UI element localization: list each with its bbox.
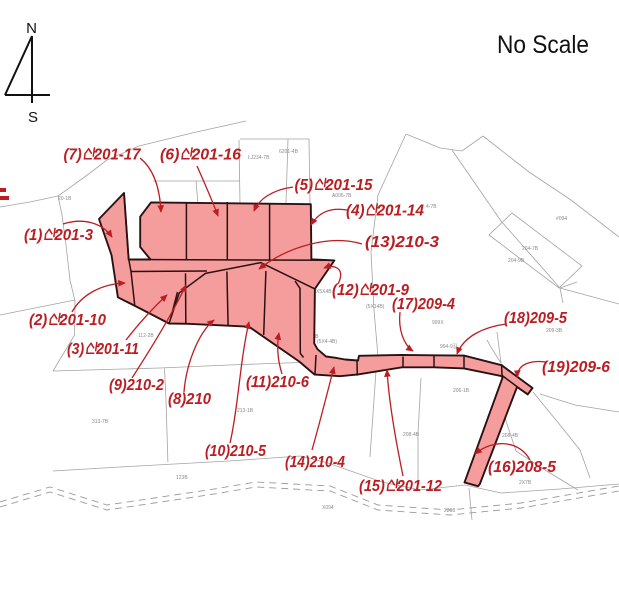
svg-text:#094: #094 [556,216,567,222]
svg-text:(11)210-6: (11)210-6 [246,374,309,391]
svg-text:201-12: 201-12 [396,478,442,495]
svg-text:201-11: 201-11 [95,341,139,358]
svg-text:(15): (15) [359,478,385,495]
svg-text:(7): (7) [64,147,82,164]
svg-text:(9)210-2: (9)210-2 [109,377,164,394]
svg-text:201-10: 201-10 [58,312,106,329]
svg-text:(8)210: (8)210 [168,391,211,408]
svg-text:2X7B: 2X7B [519,480,532,486]
svg-text:208-4B: 208-4B [403,432,420,438]
svg-text:(10)210-5: (10)210-5 [205,443,267,460]
svg-text:(4): (4) [346,203,365,220]
svg-text:N: N [26,20,37,37]
svg-text:(16)208-5: (16)208-5 [488,459,557,476]
svg-text:213-1B: 213-1B [237,408,254,414]
svg-text:209-3B: 209-3B [546,328,563,334]
svg-text:994-9길: 994-9길 [440,343,458,350]
svg-text:X094: X094 [322,505,334,511]
svg-text:(19)209-6: (19)209-6 [542,359,610,376]
svg-text:201-16: 201-16 [190,147,241,164]
svg-text:(5X14B): (5X14B) [366,304,385,310]
svg-text:206-1B: 206-1B [453,388,470,394]
svg-text:313-7B: 313-7B [92,419,109,425]
svg-text:201-15: 201-15 [324,177,373,194]
svg-text:204-7B: 204-7B [522,246,539,252]
svg-text:6201-4B: 6201-4B [279,149,299,155]
svg-text:201-14: 201-14 [376,203,424,220]
svg-text:(18)209-5: (18)209-5 [504,310,568,327]
svg-text:(2): (2) [29,312,47,329]
svg-text:208-4B: 208-4B [502,433,519,439]
svg-text:201-3: 201-3 [53,227,93,244]
svg-text:X5X4B: X5X4B [316,289,332,295]
svg-text:(14)210-4: (14)210-4 [285,454,345,471]
svg-text:(5X4-4B): (5X4-4B) [317,339,337,345]
svg-text:(6): (6) [160,147,179,164]
svg-text:112-2B: 112-2B [138,333,154,339]
svg-text:20-1B: 20-1B [58,196,72,202]
svg-text:2268: 2268 [444,508,455,514]
svg-text:(1): (1) [24,227,42,244]
svg-text:S: S [28,109,38,126]
svg-text:999X: 999X [432,320,444,326]
svg-text:(13)210-3: (13)210-3 [365,234,439,251]
svg-text:201-17: 201-17 [93,147,142,164]
svg-text:(5): (5) [295,177,314,194]
svg-text:(12): (12) [332,282,359,299]
svg-text:(17)209-4: (17)209-4 [392,296,455,313]
svg-text:123B: 123B [176,475,188,481]
svg-text:LJ234-7B: LJ234-7B [248,155,270,161]
svg-text:204-9B: 204-9B [508,258,525,264]
svg-text:No Scale: No Scale [497,31,589,59]
svg-text:4-7B: 4-7B [426,204,437,210]
svg-text:(3): (3) [67,341,84,358]
